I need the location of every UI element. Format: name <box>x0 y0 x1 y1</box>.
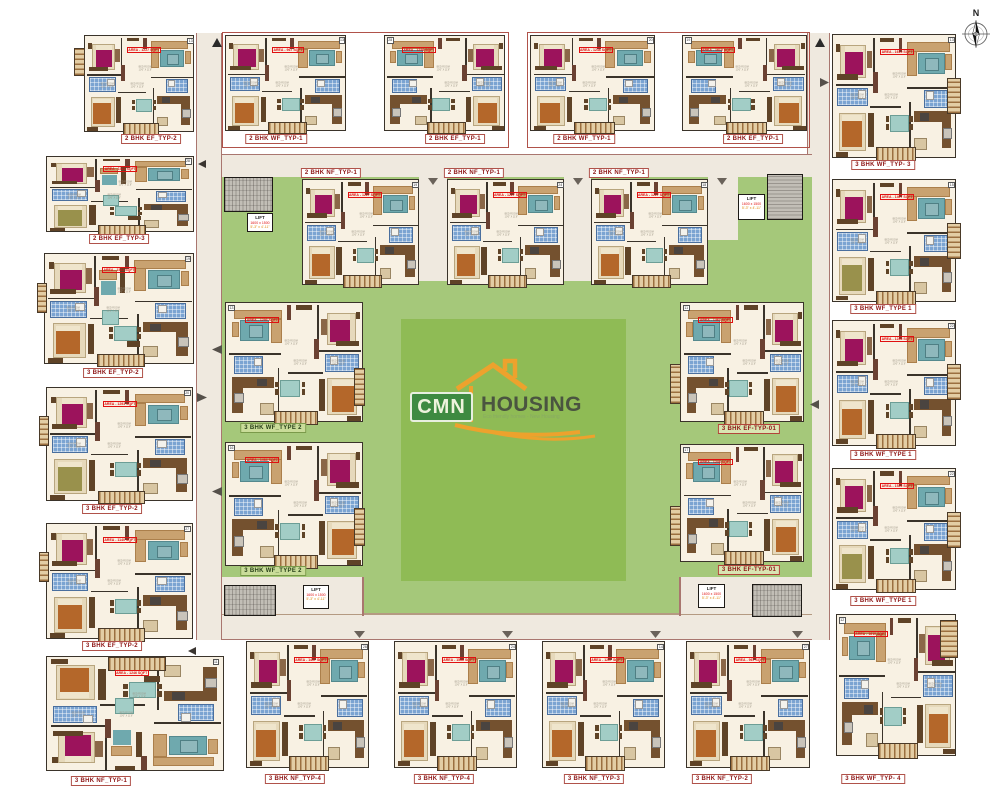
svg-text:N: N <box>973 8 980 18</box>
